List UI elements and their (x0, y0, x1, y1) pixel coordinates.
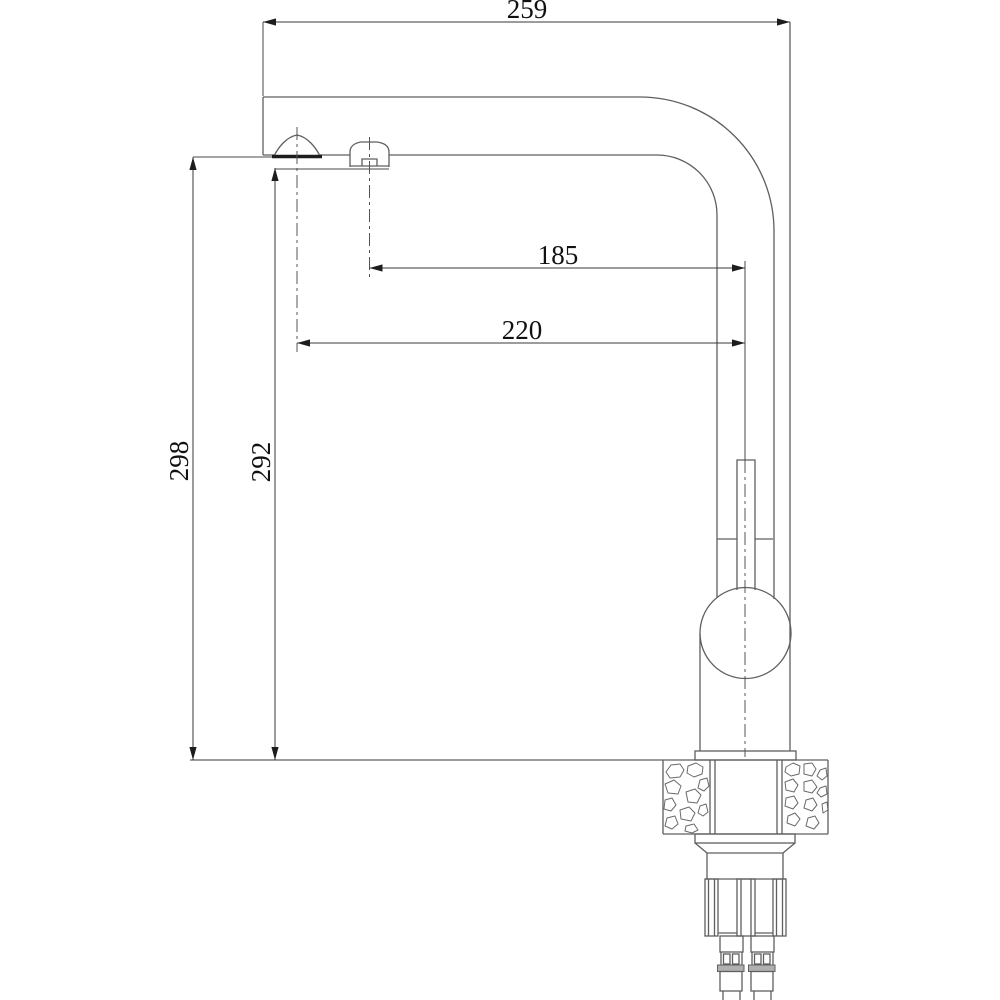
lock-taper (695, 843, 795, 853)
spout-bottom-profile (263, 155, 717, 598)
centerlines (297, 127, 745, 757)
spout-top-profile (263, 97, 774, 599)
rib-middle (737, 879, 755, 936)
hose-tube (723, 991, 740, 1000)
arrowhead (732, 339, 745, 346)
dim-value-main-outlet-reach: 220 (502, 315, 543, 345)
hose-nut-flat (733, 954, 740, 964)
rib-inner-lines (709, 879, 783, 936)
hose-sleeve (751, 972, 773, 992)
rib-right (773, 879, 786, 936)
supply-hose-left (718, 936, 745, 1000)
dimension-secondary-outlet-height: 292 (246, 168, 389, 760)
hose-collar (720, 936, 743, 952)
hose-band (749, 965, 776, 972)
lock-nut-body (705, 853, 786, 879)
arrowhead (271, 168, 278, 181)
arrowhead (189, 747, 196, 760)
dimension-secondary-outlet-reach: 185 (370, 240, 746, 272)
dimension-main-outlet-reach: 220 (297, 315, 745, 347)
dimension-overall-reach: 259 (263, 0, 790, 26)
arrowhead (370, 264, 383, 271)
countertop-section (190, 760, 828, 834)
hose-nut-flat (755, 954, 762, 964)
arrowhead (271, 747, 278, 760)
hose-nut-flat (724, 954, 731, 964)
supply-hose-right (749, 936, 776, 1000)
dim-value-main-outlet-height: 298 (164, 441, 194, 482)
mounting-hardware (695, 834, 795, 936)
hose-tube (754, 991, 771, 1000)
hose-band (718, 965, 745, 972)
arrowhead (732, 264, 745, 271)
hose-collar (751, 936, 774, 952)
cartridge-stem (737, 460, 755, 590)
hose-sleeve (720, 972, 742, 992)
dim-value-secondary-outlet-reach: 185 (538, 240, 579, 270)
arrowhead (189, 157, 196, 170)
countertop-hatch-left (664, 763, 709, 833)
faucet-dimensional-drawing: 259 185 220 298 292 (0, 0, 1000, 1000)
countertop-hatch-right (785, 763, 828, 829)
arrowhead (263, 18, 276, 25)
arrowhead (297, 339, 310, 346)
shank-walls (715, 760, 777, 834)
rib-left (705, 879, 718, 936)
arrowhead (777, 18, 790, 25)
faucet-outline (263, 22, 796, 760)
dim-value-overall-reach: 259 (507, 0, 548, 24)
technical-drawing-page: 259 185 220 298 292 (0, 0, 1000, 1000)
dim-value-secondary-outlet-height: 292 (246, 442, 276, 483)
hose-nut-flat (764, 954, 771, 964)
lock-flange (695, 834, 795, 843)
